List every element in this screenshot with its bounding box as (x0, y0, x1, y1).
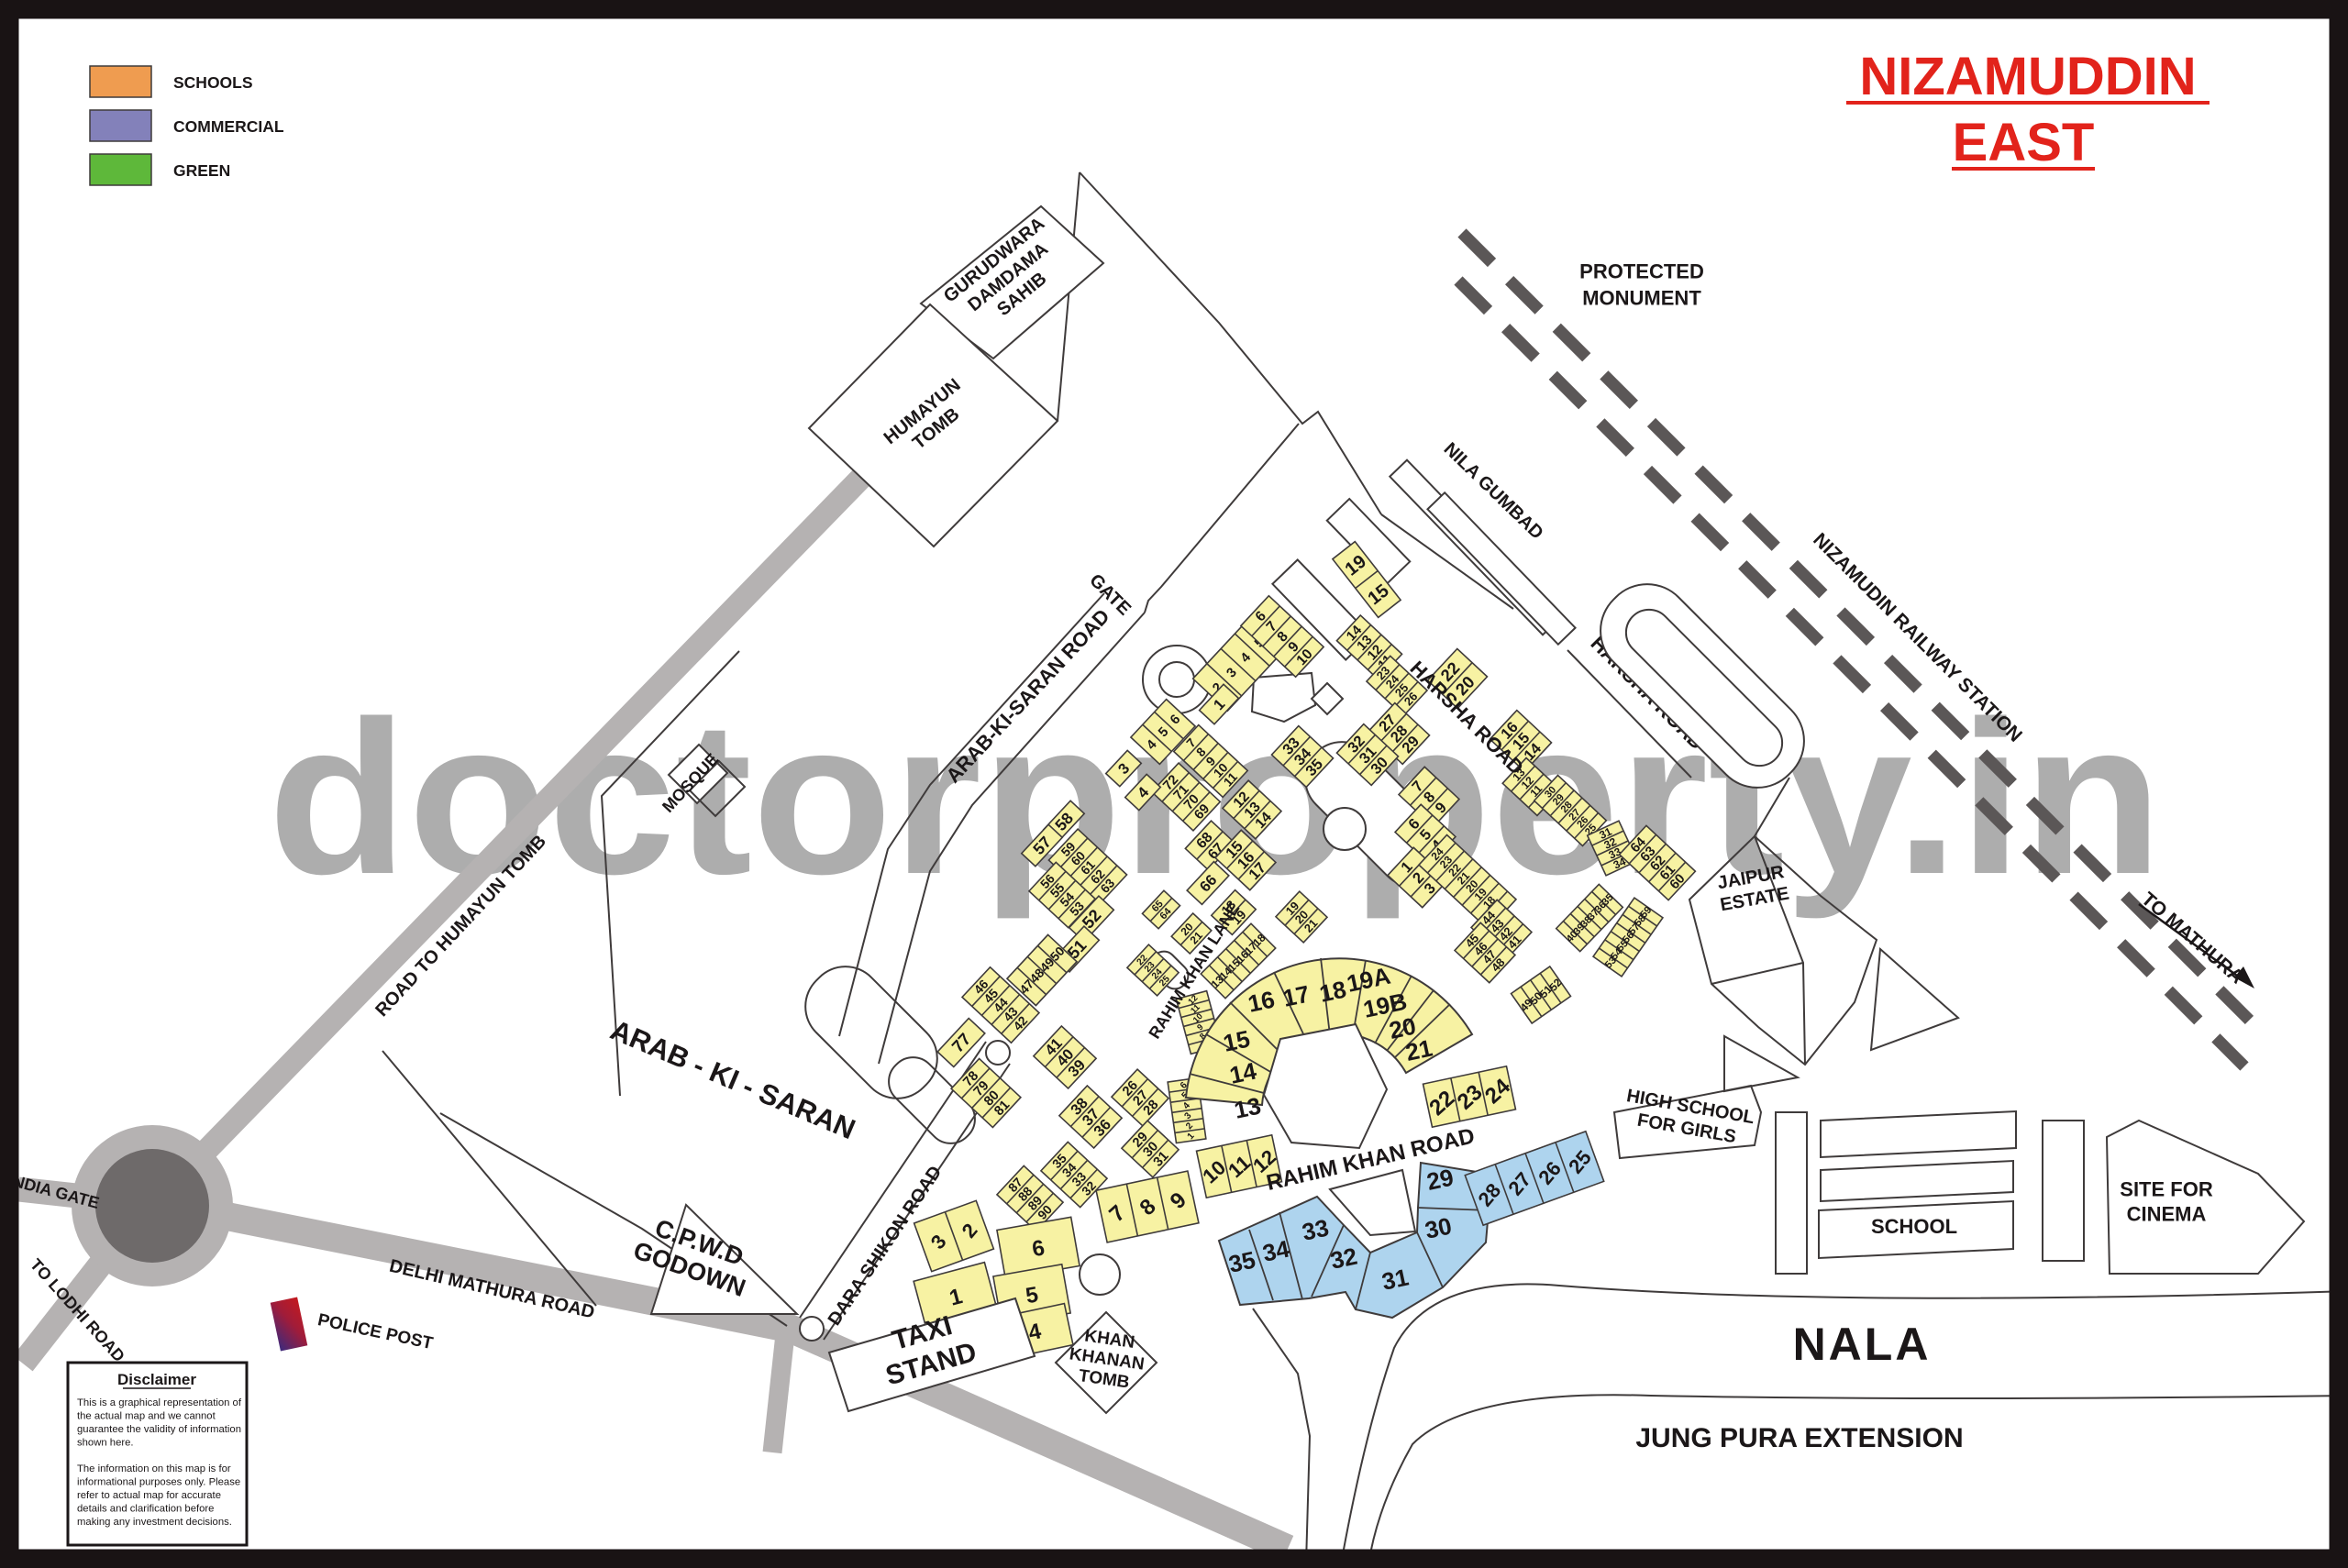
svg-text:PROTECTED: PROTECTED (1579, 260, 1704, 283)
svg-text:18: 18 (1317, 976, 1349, 1008)
svg-text:JUNG PURA EXTENSION: JUNG PURA EXTENSION (1635, 1423, 1963, 1453)
svg-text:MONUMENT: MONUMENT (1582, 287, 1701, 310)
svg-text:SCHOOLS: SCHOOLS (173, 73, 253, 92)
svg-text:details and clarification befo: details and clarification before (77, 1504, 214, 1515)
svg-text:shown here.: shown here. (77, 1438, 134, 1449)
svg-text:This is a graphical representa: This is a graphical representation of (77, 1397, 242, 1408)
svg-text:32: 32 (1328, 1242, 1360, 1275)
svg-text:GREEN: GREEN (173, 161, 230, 180)
svg-text:16: 16 (1246, 986, 1278, 1018)
svg-text:SITE FOR: SITE FOR (2120, 1178, 2213, 1201)
svg-text:30: 30 (1423, 1212, 1455, 1244)
svg-text:13: 13 (1232, 1092, 1264, 1124)
svg-text:COMMERCIAL: COMMERCIAL (173, 117, 284, 136)
svg-text:EAST: EAST (1953, 113, 2095, 172)
svg-text:21: 21 (1403, 1034, 1435, 1066)
svg-text:making any investment decision: making any investment decisions. (77, 1517, 232, 1528)
svg-text:35: 35 (1226, 1246, 1258, 1278)
svg-text:The information on this map is: The information on this map is for (77, 1463, 231, 1474)
svg-text:refer to actual map for accura: refer to actual map for accurate (77, 1490, 221, 1501)
svg-text:SCHOOL: SCHOOL (1871, 1215, 1957, 1238)
svg-text:NIZAMUDDIN: NIZAMUDDIN (1859, 47, 2196, 106)
svg-text:informational purposes only. P: informational purposes only. Please (77, 1477, 240, 1488)
svg-text:15: 15 (1221, 1025, 1253, 1057)
svg-text:17: 17 (1280, 980, 1312, 1012)
svg-text:29: 29 (1424, 1164, 1456, 1196)
svg-text:the actual map and we cannot: the actual map and we cannot (77, 1411, 216, 1422)
svg-text:33: 33 (1300, 1214, 1332, 1246)
svg-text:31: 31 (1379, 1264, 1412, 1296)
svg-text:NALA: NALA (1793, 1319, 1932, 1370)
svg-text:Disclaimer: Disclaimer (117, 1371, 196, 1388)
svg-text:guarantee the validity of info: guarantee the validity of information (77, 1424, 241, 1435)
svg-text:CINEMA: CINEMA (2127, 1203, 2207, 1226)
